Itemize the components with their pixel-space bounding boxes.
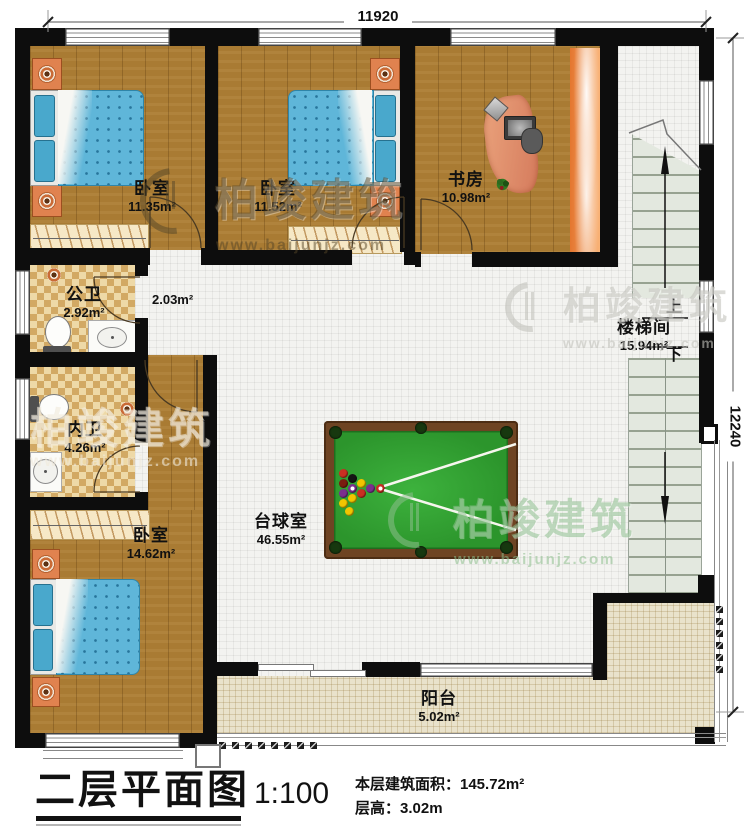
wall	[699, 28, 714, 80]
lamp-icon	[376, 65, 394, 83]
sliding-door	[258, 664, 314, 671]
wall	[217, 662, 258, 676]
stair-lower-flight	[628, 358, 702, 593]
nightstand	[32, 549, 60, 579]
railing-post	[297, 742, 304, 749]
nightstand	[32, 677, 60, 707]
bed-sheet	[338, 90, 372, 184]
wall	[15, 440, 30, 748]
wall	[203, 355, 217, 748]
window	[65, 28, 170, 46]
wall	[135, 265, 148, 276]
wardrobe	[30, 510, 150, 540]
pocket-icon	[329, 541, 342, 554]
railing-post	[716, 618, 723, 625]
wall	[556, 28, 714, 46]
wall	[362, 28, 450, 46]
railing-post	[310, 742, 317, 749]
stairs-down-label: 下	[666, 348, 682, 364]
wall	[170, 28, 258, 46]
toilet	[45, 316, 71, 348]
window	[45, 733, 180, 748]
pillow	[34, 95, 55, 137]
pillow	[34, 140, 55, 182]
billiard-ball	[339, 489, 348, 498]
balcony-railing	[714, 440, 728, 742]
stairs-up-label: 上	[666, 300, 682, 316]
wall	[404, 250, 415, 265]
plant-icon	[494, 176, 511, 193]
pocket-icon	[500, 541, 513, 554]
railing-post	[284, 742, 291, 749]
nightstand	[370, 58, 400, 90]
toilet-tank	[30, 396, 39, 422]
railing-post	[716, 654, 723, 661]
pocket-icon	[329, 426, 342, 439]
window	[699, 80, 714, 145]
bed-sheet	[56, 579, 88, 673]
railing-post	[245, 742, 252, 749]
railing-post	[232, 742, 239, 749]
plan-title: 二层平面图	[35, 768, 250, 812]
wall	[201, 248, 218, 265]
pocket-icon	[415, 546, 427, 558]
window	[420, 663, 593, 677]
billiard-ball	[348, 484, 357, 493]
wall	[15, 352, 148, 367]
billiard-ball	[376, 484, 385, 493]
pillow	[33, 629, 53, 671]
pocket-icon	[500, 426, 513, 439]
billiard-ball	[357, 479, 366, 488]
wall	[135, 318, 148, 443]
billiard-ball	[348, 474, 357, 483]
lamp-icon	[38, 192, 56, 210]
billiard-ball	[339, 479, 348, 488]
sliding-door	[310, 670, 366, 677]
wall	[593, 593, 607, 680]
nightstand	[32, 58, 62, 90]
ceiling-lamp-icon	[47, 268, 61, 282]
window	[15, 270, 30, 335]
sink	[97, 327, 127, 348]
sink	[33, 459, 58, 484]
wall	[218, 250, 352, 265]
balcony-floor	[217, 676, 714, 733]
lamp-icon	[37, 555, 55, 573]
billiard-ball	[345, 507, 354, 516]
wall	[415, 252, 421, 267]
pillow	[33, 584, 53, 626]
railing-post	[258, 742, 265, 749]
railing-post	[716, 630, 723, 637]
wall	[593, 593, 713, 603]
lamp-icon	[37, 683, 55, 701]
plan-scale: 1:100	[254, 774, 329, 814]
billiard-ball	[348, 494, 357, 503]
dimension-top: 11920	[344, 8, 412, 25]
lamp-icon	[376, 192, 394, 210]
wall	[15, 248, 150, 265]
wall	[699, 145, 714, 280]
nightstand	[370, 185, 400, 217]
balcony-railing	[217, 733, 726, 746]
wall	[600, 46, 618, 267]
porch-column	[195, 744, 221, 768]
billiard-ball	[366, 484, 375, 493]
floor-area-note: 本层建筑面积：145.72m²	[355, 774, 524, 796]
corridor-floor	[148, 355, 203, 510]
lamp-icon	[38, 65, 56, 83]
railing-post	[716, 606, 723, 613]
railing-post	[716, 642, 723, 649]
window	[258, 28, 362, 46]
study-bookshelf	[570, 48, 600, 252]
wall	[15, 28, 30, 270]
wall	[362, 662, 420, 677]
nightstand	[32, 185, 62, 217]
wall	[698, 575, 714, 603]
ceiling-lamp-icon	[120, 402, 134, 416]
window	[699, 280, 714, 333]
desk-chair	[521, 128, 543, 154]
pocket-icon	[415, 422, 427, 434]
window	[450, 28, 556, 46]
bed-sheet	[58, 90, 92, 184]
wall	[400, 46, 415, 252]
dimension-right: 12240	[727, 392, 744, 462]
billiard-ball	[339, 469, 348, 478]
floor-plan: 卧室 11.35m² 卧室 11.52m² 书房 10.98m² 公卫 2.92…	[0, 0, 750, 831]
wall	[472, 252, 600, 267]
pillow	[375, 95, 396, 137]
floor-height-note: 层高：3.02m	[355, 798, 443, 820]
title-underline	[36, 816, 241, 821]
hallway-area-label: 2.03m²	[152, 292, 193, 307]
toilet	[39, 394, 69, 420]
title-underline-shadow	[36, 824, 241, 826]
billiard-ball	[357, 489, 366, 498]
window-sill	[43, 750, 183, 759]
balcony-floor-right	[607, 603, 714, 678]
railing-post	[716, 666, 723, 673]
wall	[205, 46, 218, 250]
railing-post	[271, 742, 278, 749]
window	[15, 378, 30, 440]
pillow	[375, 140, 396, 182]
wall	[15, 497, 148, 510]
